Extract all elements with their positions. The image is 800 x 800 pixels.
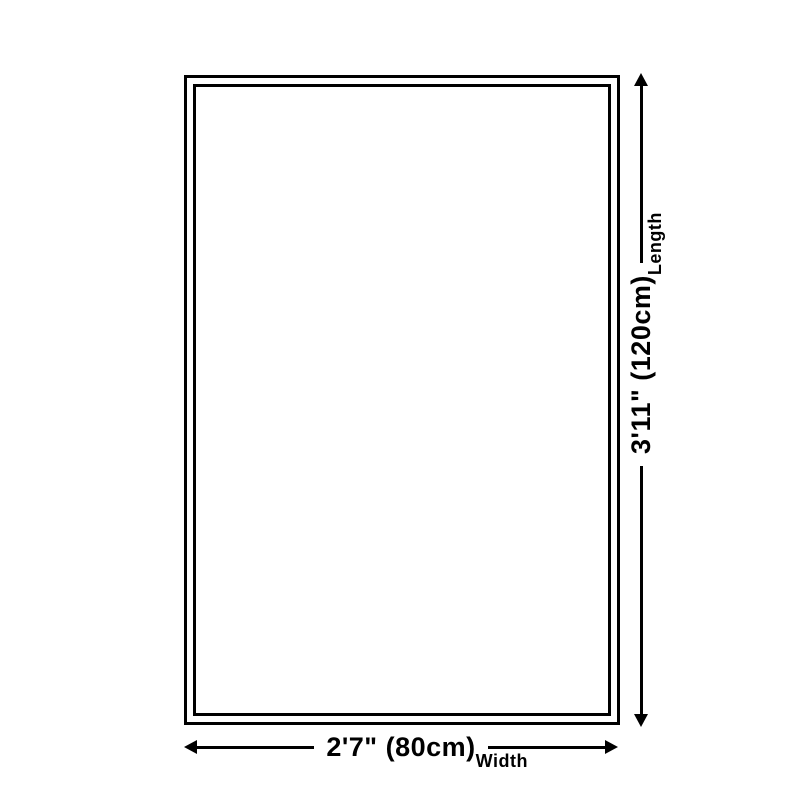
rug-outline-inner [193,84,611,716]
length-axis-label: Length [646,212,664,275]
width-dimension: 2'7" (80cm) Width [184,731,618,763]
arrow-left-icon [184,740,197,754]
arrow-down-icon [634,714,648,727]
length-dimension-line-upper: Length [640,86,643,263]
width-dimension-line-right: Width [488,746,605,749]
rug-outline-outer [184,75,620,725]
arrow-up-icon [634,73,648,86]
length-dimension: 3'11" (120cm) Length [625,73,657,727]
length-dimension-line-lower [640,466,643,714]
width-dimension-line-left [197,746,314,749]
length-value-label: 3'11" (120cm) [625,263,657,466]
width-value-label: 2'7" (80cm) [314,731,487,763]
width-axis-label: Width [476,752,528,770]
arrow-right-icon [605,740,618,754]
